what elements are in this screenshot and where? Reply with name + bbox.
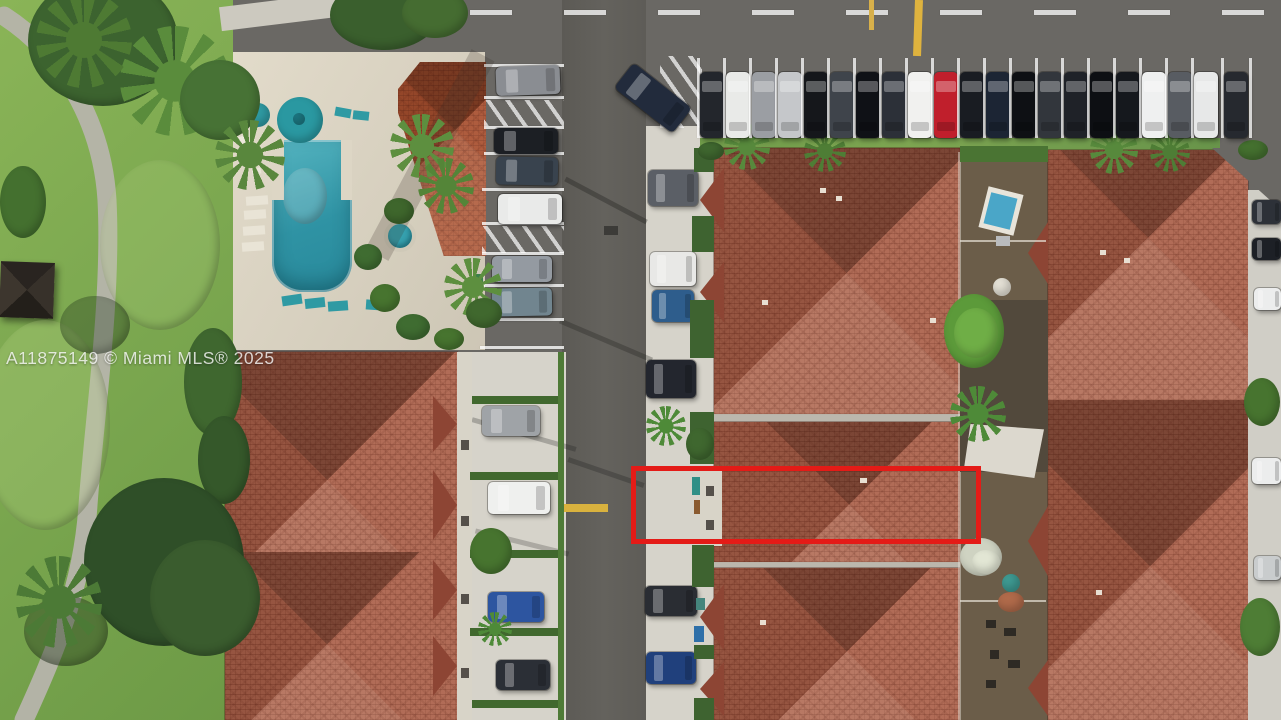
pole-shadow xyxy=(564,177,648,225)
yellow-post xyxy=(913,0,923,56)
hedge xyxy=(472,700,564,708)
hedge xyxy=(470,472,564,480)
palm-tree xyxy=(950,386,1006,442)
lounger xyxy=(246,195,269,206)
parked-car xyxy=(1038,72,1062,138)
parked-car xyxy=(496,65,561,96)
hedge xyxy=(690,300,714,358)
parked-car xyxy=(1012,72,1036,138)
roof-gable xyxy=(1028,222,1048,284)
parked-car xyxy=(960,72,984,138)
no-park-hatch xyxy=(482,226,564,253)
lane-dash xyxy=(658,10,700,15)
roof-gable xyxy=(433,470,457,540)
roof-vent xyxy=(1124,258,1130,263)
driveway-car xyxy=(1254,288,1281,310)
parked-car xyxy=(496,156,558,185)
ac-unit xyxy=(996,236,1010,246)
stall-stripe xyxy=(480,346,564,349)
roof-vent xyxy=(836,196,842,201)
roof-gable xyxy=(433,636,457,696)
parked-car xyxy=(1224,72,1248,138)
patio-table xyxy=(993,278,1011,296)
tree xyxy=(150,540,260,656)
parked-car xyxy=(908,72,932,138)
pool-ripple xyxy=(283,168,327,224)
parked-car xyxy=(1090,72,1114,138)
door xyxy=(461,516,469,526)
roof-vent xyxy=(1100,250,1106,255)
hedge xyxy=(1244,378,1280,426)
hedge xyxy=(692,216,714,252)
road-patch xyxy=(604,226,618,235)
parked-car xyxy=(1142,72,1166,138)
door xyxy=(461,594,469,604)
palm-tree xyxy=(16,556,102,648)
parked-car xyxy=(726,72,750,138)
grass-verge xyxy=(558,352,564,720)
stall-stripe xyxy=(484,96,564,99)
stall-stripe xyxy=(1249,58,1252,138)
flower-bush xyxy=(972,550,1000,574)
no-park-hatch xyxy=(484,100,564,126)
patio-furniture xyxy=(1004,628,1016,636)
door xyxy=(461,668,469,678)
tree xyxy=(0,166,46,238)
palm-tree xyxy=(646,406,686,446)
roof-vent xyxy=(760,620,766,625)
stall-stripe xyxy=(482,252,564,255)
roof-vent xyxy=(762,300,768,305)
hedge xyxy=(434,328,464,350)
driveway-car xyxy=(650,252,696,286)
hedge xyxy=(692,545,714,587)
driveway-car xyxy=(496,660,550,690)
tree xyxy=(954,308,998,358)
driveway-car xyxy=(1254,556,1281,580)
lounger xyxy=(243,225,266,236)
yellow-post xyxy=(869,0,874,30)
roof-vent xyxy=(930,318,936,323)
driveway-car xyxy=(646,360,696,398)
hedge xyxy=(370,284,400,312)
driveway-car xyxy=(488,482,550,514)
driveway-car xyxy=(645,586,697,616)
palm-tree xyxy=(418,158,474,214)
driveway-car xyxy=(1252,458,1281,484)
lounger xyxy=(334,107,351,119)
parked-car xyxy=(882,72,906,138)
roof-gable xyxy=(433,396,457,452)
stall-stripe xyxy=(482,188,564,191)
hedge xyxy=(472,396,562,404)
hedge xyxy=(698,142,724,160)
parked-car xyxy=(934,72,958,138)
palm-tree xyxy=(478,612,512,646)
roof-vent xyxy=(820,188,826,193)
tree-shadow xyxy=(60,296,130,354)
lane-dash xyxy=(470,10,512,15)
parked-car xyxy=(1194,72,1218,138)
roof-vent xyxy=(1096,590,1102,595)
lane-dash xyxy=(940,10,982,15)
hedge xyxy=(686,428,714,460)
hedge xyxy=(466,298,502,328)
patio-item xyxy=(1002,574,1020,592)
pole-shadow xyxy=(559,319,653,363)
lounger xyxy=(328,300,349,311)
hedge xyxy=(470,528,512,574)
watermark: A11875149 © Miami MLS® 2025 xyxy=(6,348,275,369)
hedge xyxy=(1238,140,1268,160)
palm-tree xyxy=(1150,132,1190,172)
lounger xyxy=(244,209,267,220)
bin xyxy=(696,598,705,610)
parked-car xyxy=(498,194,562,224)
lane-dash xyxy=(1128,10,1170,15)
parked-car xyxy=(494,128,558,154)
patio-furniture xyxy=(986,620,996,628)
lounger xyxy=(242,241,265,252)
lane-dash xyxy=(564,10,606,15)
parked-car xyxy=(700,72,724,138)
driveway-car xyxy=(482,406,540,436)
aerial-photo: A11875149 © Miami MLS® 2025 xyxy=(0,0,1281,720)
hedge xyxy=(354,244,382,270)
lane-dash xyxy=(1034,10,1076,15)
patio-item xyxy=(998,592,1024,612)
lane-dash xyxy=(846,10,888,15)
entry-walk xyxy=(457,352,472,720)
parked-car xyxy=(1064,72,1088,138)
hedge xyxy=(694,645,714,659)
parked-car xyxy=(778,72,802,138)
parked-car xyxy=(856,72,880,138)
driveway-car xyxy=(652,290,694,322)
lounger xyxy=(353,110,370,121)
parked-car xyxy=(830,72,854,138)
hedge xyxy=(1240,598,1280,656)
lane-dash xyxy=(1222,10,1264,15)
parked-car xyxy=(752,72,776,138)
highlight-rectangle xyxy=(631,466,981,544)
roof-gable xyxy=(433,560,457,620)
parked-car xyxy=(804,72,828,138)
parked-car xyxy=(1116,72,1140,138)
parked-car xyxy=(1168,72,1192,138)
lounger xyxy=(305,297,326,309)
parked-car xyxy=(492,256,552,282)
driveway-car xyxy=(1252,238,1281,260)
patio-furniture xyxy=(986,680,996,688)
patio-furniture xyxy=(990,650,999,659)
hedge xyxy=(396,314,430,340)
door xyxy=(461,440,469,450)
parked-car xyxy=(986,72,1010,138)
yellow-curb-mark xyxy=(562,504,608,512)
driveway-car xyxy=(648,170,698,206)
roof-gable xyxy=(1028,506,1048,576)
sidewalk xyxy=(219,0,339,31)
lane-dash xyxy=(752,10,794,15)
bin xyxy=(694,626,704,642)
hedge xyxy=(960,146,1048,162)
pool-edge xyxy=(341,140,352,200)
roof-gable xyxy=(1028,660,1048,716)
patio-furniture xyxy=(1008,660,1020,668)
hedge xyxy=(694,698,714,720)
driveway-car xyxy=(1252,200,1281,224)
palm-tree xyxy=(215,120,285,190)
driveway-car xyxy=(646,652,696,684)
hedge xyxy=(384,198,414,224)
lounger xyxy=(281,294,302,307)
umbrella-center xyxy=(293,113,305,125)
